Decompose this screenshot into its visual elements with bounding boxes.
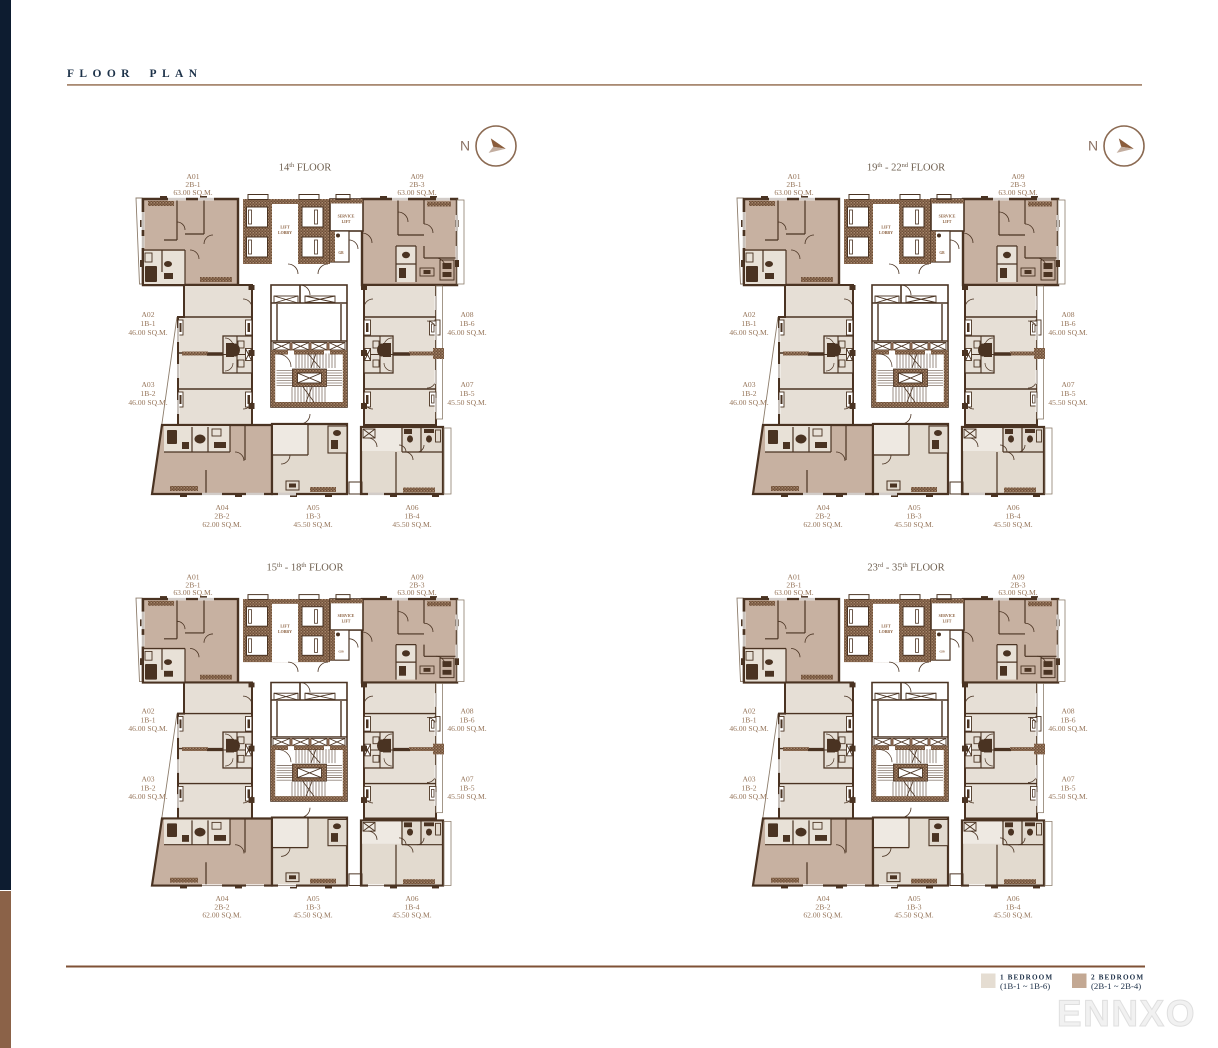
svg-text:ENNXO: ENNXO [1057, 993, 1196, 1034]
svg-text:N: N [460, 138, 470, 154]
svg-text:(2B-1 ~ 2B-4): (2B-1 ~ 2B-4) [1091, 981, 1141, 991]
svg-text:15th - 18th FLOOR: 15th - 18th FLOOR [267, 562, 344, 574]
svg-text:FLOOR PLAN: FLOOR PLAN [67, 68, 202, 80]
svg-text:19th - 22nd FLOOR: 19th - 22nd FLOOR [867, 162, 945, 174]
svg-text:N: N [1088, 138, 1098, 154]
svg-text:(1B-1 ~ 1B-6): (1B-1 ~ 1B-6) [1000, 981, 1050, 991]
svg-text:14th FLOOR: 14th FLOOR [279, 162, 332, 174]
svg-text:23rd - 35th FLOOR: 23rd - 35th FLOOR [867, 562, 944, 574]
